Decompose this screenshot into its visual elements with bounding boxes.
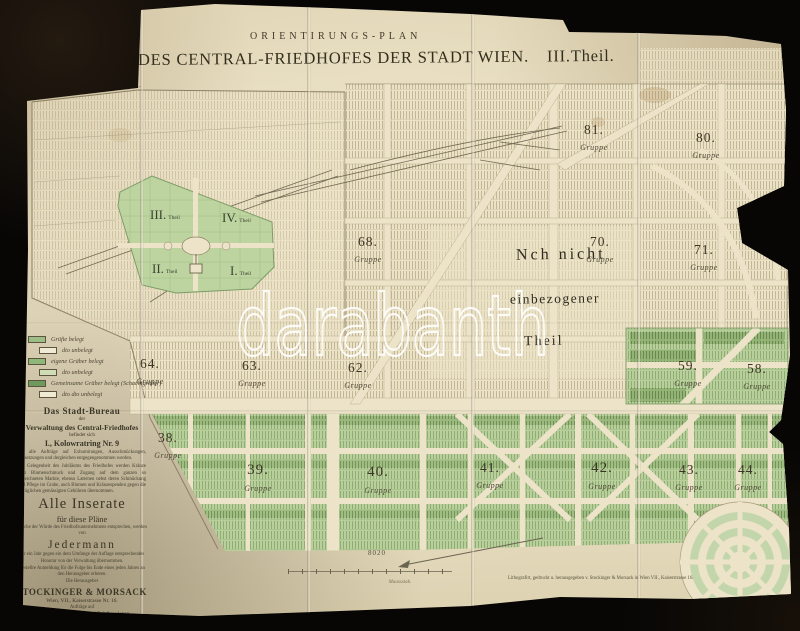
legend-swatch — [28, 380, 46, 387]
map-title-part: III.Theil. — [547, 46, 615, 67]
group-word: Gruppe — [692, 151, 719, 160]
group-label: 58.Gruppe — [743, 361, 770, 391]
bureau-address: I., Kolowratring Nr. 9 — [18, 439, 146, 448]
legend-item: dto unbelegt — [39, 369, 162, 376]
unassigned-text-line3: Theil — [524, 334, 564, 351]
part-numeral: II. — [152, 261, 164, 276]
group-word: Gruppe — [588, 482, 615, 491]
group-word: Gruppe — [344, 381, 371, 390]
inserate-heading: Alle Inserate — [16, 496, 148, 513]
legend-item: dto dto unbelegt — [39, 391, 162, 398]
publisher-address: Wien, VII., Kaiserstrasse Nr. 16. — [16, 598, 148, 604]
group-word: Gruppe — [580, 143, 607, 152]
legend-label: eigene Gräber belegt — [51, 358, 104, 365]
legend-item: dto unbelegt — [39, 347, 162, 354]
fold-crease — [25, 86, 141, 89]
bureau-paragraph: Bei Gelegenheit des Jubiläums des Friedh… — [18, 464, 146, 495]
group-number: 59. — [674, 358, 701, 374]
group-word: Gruppe — [734, 483, 761, 492]
scale-value: 8020 — [368, 549, 386, 557]
legend-label: dto unbelegt — [62, 369, 93, 376]
group-word: Gruppe — [238, 379, 265, 388]
group-label: 68.Gruppe — [354, 234, 381, 264]
group-word: Gruppe — [354, 255, 381, 264]
group-number: 58. — [743, 361, 770, 377]
group-label: 40.Gruppe — [364, 464, 391, 495]
map-title-text: DES CENTRAL-FRIEDHOFES DER STADT WIEN. — [138, 47, 529, 70]
inserate-paragraph: Bestellte Anmeldung für die Folge bis En… — [16, 566, 148, 578]
imprint-line: Lithografirt, gedruckt u. herausgegeben … — [508, 576, 793, 581]
map-legend: Grüfte belegt dto unbelegt eigene Gräber… — [28, 336, 162, 402]
old-part-label: II.Theil — [152, 260, 178, 278]
map-title: DES CENTRAL-FRIEDHOFES DER STADT WIEN. I… — [138, 46, 608, 70]
group-label: 43.Gruppe — [675, 462, 702, 492]
group-number: 41. — [476, 460, 503, 476]
legend-swatch — [28, 336, 46, 343]
group-word: Gruppe — [675, 483, 702, 492]
group-word: Gruppe — [690, 263, 717, 272]
group-number: 62. — [344, 360, 371, 376]
legend-swatch — [39, 369, 57, 376]
bureau-sub: der — [18, 417, 146, 422]
group-label: 71.Gruppe — [690, 242, 717, 272]
group-number: 40. — [364, 464, 391, 481]
bureau-sub: befindet sich — [18, 433, 146, 438]
legend-label: Gemeinsame Gräber belegt (Schachtgräber) — [51, 380, 162, 387]
inserate-jedermann: Jedermann — [16, 539, 148, 551]
group-label: 42.Gruppe — [588, 460, 615, 491]
bureau-heading: Das Stadt-Bureau — [18, 406, 146, 416]
bureau-paragraph: wo alle Aufträge auf Exhumirungen, Aussc… — [18, 450, 146, 462]
group-number: 38. — [154, 430, 181, 446]
legend-item: Gemeinsame Gräber belegt (Schachtgräber) — [28, 380, 162, 387]
inserate-line: welche der Würde des Friedhofsunternehme… — [16, 525, 148, 537]
inserate-paragraph: für ein Jahr gegen ein dem Umfange der A… — [16, 552, 148, 564]
group-label: 38.Gruppe — [154, 430, 181, 460]
legend-item: Grüfte belegt — [28, 336, 162, 343]
scale-caption: Maassstab. — [330, 580, 470, 585]
part-numeral: I. — [230, 263, 238, 278]
legend-label: Grüfte belegt — [51, 336, 84, 343]
part-word: Theil — [168, 215, 180, 221]
group-word: Gruppe — [154, 451, 181, 460]
map-title-overline: ORIENTIRUNGS-PLAN — [250, 31, 410, 42]
inserate-line: Parten, Trauerkarten und Briefpapieren — [16, 611, 148, 617]
inserate-line: werden daselbst übernommen. — [16, 618, 148, 624]
old-part-label: III.Theil — [150, 206, 180, 224]
photo-background: ORIENTIRUNGS-PLAN DES CENTRAL-FRIEDHOFES… — [0, 0, 800, 631]
publisher-name: STOCKINGER & MORSACK — [16, 587, 148, 597]
group-number: 80. — [692, 130, 719, 146]
legend-swatch — [39, 391, 57, 398]
rondeau — [680, 502, 800, 622]
part-word: Theil — [166, 269, 178, 275]
group-number: 43. — [675, 462, 702, 478]
legend-label: dto dto unbelegt — [62, 391, 102, 398]
legend-item: eigene Gräber belegt — [28, 358, 162, 365]
inserate-sub: für diese Pläne — [16, 514, 148, 524]
part-numeral: IV. — [222, 210, 237, 225]
group-number: 71. — [690, 242, 717, 258]
unassigned-text-line2: einbezogener — [510, 290, 600, 307]
group-label: 44.Gruppe — [734, 462, 761, 492]
group-label: 62.Gruppe — [344, 360, 371, 390]
group-word: Gruppe — [674, 379, 701, 388]
group-label: 39.Gruppe — [244, 462, 271, 493]
old-part-label: IV.Theil — [222, 209, 251, 227]
part-word: Theil — [239, 218, 251, 224]
bureau-line: Verwaltung des Central-Friedhofes — [18, 423, 146, 432]
old-part-label: I.Theil — [230, 262, 251, 280]
group-label: 41.Gruppe — [476, 460, 503, 490]
group-number: 42. — [588, 460, 615, 477]
bureau-notice: Das Stadt-Bureau der Verwaltung des Cent… — [18, 406, 146, 496]
group-number: 68. — [354, 234, 381, 250]
group-word: Gruppe — [743, 382, 770, 391]
group-word: Gruppe — [476, 481, 503, 490]
inserate-notice: Alle Inserate für diese Pläne welche der… — [16, 496, 148, 624]
group-number: 39. — [244, 462, 271, 479]
legend-swatch — [28, 358, 46, 365]
map-sheet: ORIENTIRUNGS-PLAN DES CENTRAL-FRIEDHOFES… — [0, 0, 800, 631]
part-word: Theil — [240, 271, 252, 277]
group-label: 81.Gruppe — [580, 122, 607, 152]
legend-swatch — [39, 347, 57, 354]
group-word: Gruppe — [364, 486, 391, 495]
group-word: Gruppe — [244, 484, 271, 493]
group-number: 81. — [580, 122, 607, 138]
unassigned-text-line1: Nch nicht — [516, 245, 606, 264]
group-label: 59.Gruppe — [674, 358, 701, 388]
legend-label: dto unbelegt — [62, 347, 93, 354]
group-number: 63. — [238, 358, 265, 374]
group-label: 80.Gruppe — [692, 130, 719, 160]
group-number: 44. — [734, 462, 761, 478]
group-label: 63.Gruppe — [238, 358, 265, 388]
part-numeral: III. — [150, 207, 166, 222]
inserate-line: Die Herausgeber — [16, 579, 148, 585]
